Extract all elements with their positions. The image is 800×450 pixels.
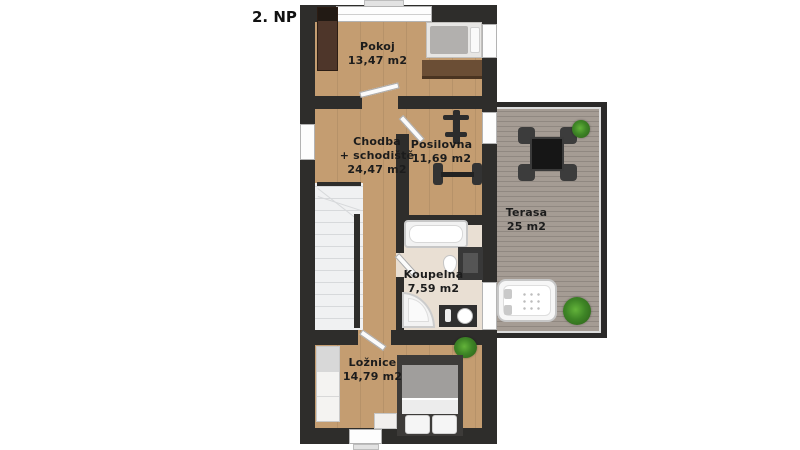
vanity [439, 305, 477, 327]
floorplan-canvas: 2. NP Terasa 25 m2 [0, 0, 800, 450]
wall-pokoj-south [315, 96, 362, 109]
staircase-railing [354, 214, 360, 328]
room-label-koupelna: Koupelna 7,59 m2 [396, 268, 471, 296]
window-chodba-west [300, 124, 315, 160]
pillow [432, 415, 457, 434]
wall-loznice-north [315, 330, 358, 345]
door-posilovna-terrace [482, 112, 497, 144]
nightstand [374, 413, 397, 429]
room-area: 11,69 m2 [404, 152, 479, 166]
room-area: 25 m2 [489, 220, 564, 234]
room-name: Koupelna [396, 268, 471, 282]
room-name: Pokoj [340, 40, 415, 54]
window-bottom [349, 429, 382, 444]
staircase-top-edge [317, 182, 361, 186]
room-name: Ložnice [335, 356, 410, 370]
wardrobe-dark [317, 7, 338, 71]
bathtub [404, 220, 468, 248]
single-bed [426, 22, 482, 58]
plant-icon [572, 120, 590, 138]
room-area: 14,79 m2 [335, 370, 410, 384]
room-name: Posilovna [404, 138, 479, 152]
room-area: 7,59 m2 [396, 282, 471, 296]
window-top [336, 6, 432, 22]
room-label-posilovna: Posilovna 11,69 m2 [404, 138, 479, 166]
window-sill [353, 444, 379, 450]
wall-left [300, 5, 315, 444]
weight-bench [433, 163, 482, 185]
floor-label: 2. NP [252, 8, 297, 26]
wall-koupelna-west [396, 225, 404, 253]
room-area: 13,47 m2 [340, 54, 415, 68]
desk [422, 60, 482, 79]
plant-icon [563, 297, 591, 325]
pillow [405, 415, 430, 434]
room-label-pokoj: Pokoj 13,47 m2 [340, 40, 415, 68]
terrace-table [530, 137, 564, 171]
room-name: Terasa [489, 206, 564, 220]
wall-right [482, 5, 497, 444]
wall-pokoj-south [398, 96, 482, 109]
room-label-loznice: Ložnice 14,79 m2 [335, 356, 410, 384]
room-label-terasa: Terasa 25 m2 [489, 206, 564, 234]
window-pokoj-east [482, 24, 497, 58]
sink [457, 308, 473, 324]
hot-tub [497, 279, 557, 322]
door-terrace-lower [482, 282, 497, 330]
